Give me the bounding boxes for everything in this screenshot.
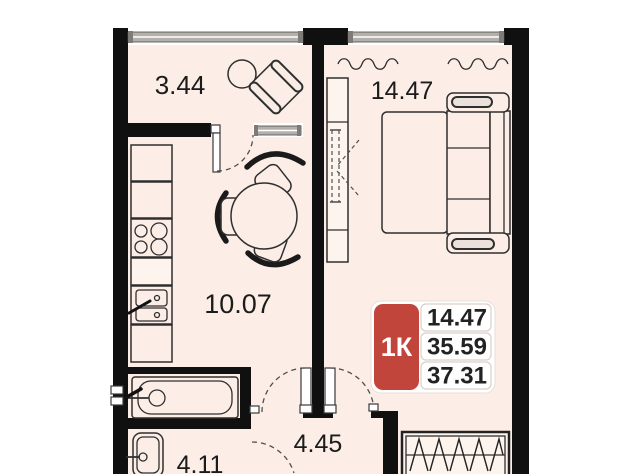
wall-bath-mid xyxy=(113,418,251,429)
kitchen-counter xyxy=(129,145,172,362)
badge-value-room: 14.47 xyxy=(427,305,487,332)
floor-plan-page: 3.44 14.47 10.07 4.45 4.11 1К 14.47 35.5… xyxy=(0,0,640,474)
info-badge: 1К 14.47 35.59 37.31 xyxy=(371,301,495,393)
dining-table xyxy=(231,183,297,249)
area-label-balcony: 3.44 xyxy=(155,70,206,100)
wall-top-pier xyxy=(303,28,348,45)
area-label-hallway: 4.45 xyxy=(294,430,343,458)
badge-type-label: 1К xyxy=(381,332,413,362)
wall-balcony-partition xyxy=(113,123,211,137)
wall-hall-right xyxy=(383,411,398,474)
valve-box xyxy=(111,386,123,394)
area-label-bathroom: 4.11 xyxy=(177,451,224,474)
bed xyxy=(382,112,448,233)
valve-box xyxy=(111,397,123,405)
sofa-backrest xyxy=(490,111,510,234)
badge-value-living: 35.59 xyxy=(427,334,487,361)
area-label-kitchen: 10.07 xyxy=(204,289,272,319)
badge-value-total: 37.31 xyxy=(427,363,487,390)
balcony-door-leaf xyxy=(213,133,220,172)
wall-left xyxy=(113,28,128,474)
wall-top-right-corner xyxy=(504,28,529,45)
balcony-door-jamb xyxy=(211,125,220,133)
area-label-bedroom: 14.47 xyxy=(371,77,434,105)
wall-bath-top xyxy=(113,367,247,374)
floor-plan: 3.44 14.47 10.07 4.45 4.11 1К 14.47 35.5… xyxy=(0,0,640,474)
hall-wardrobe xyxy=(402,432,509,474)
wall-central xyxy=(312,28,324,413)
sofa xyxy=(447,93,510,253)
wall-right xyxy=(512,28,529,474)
